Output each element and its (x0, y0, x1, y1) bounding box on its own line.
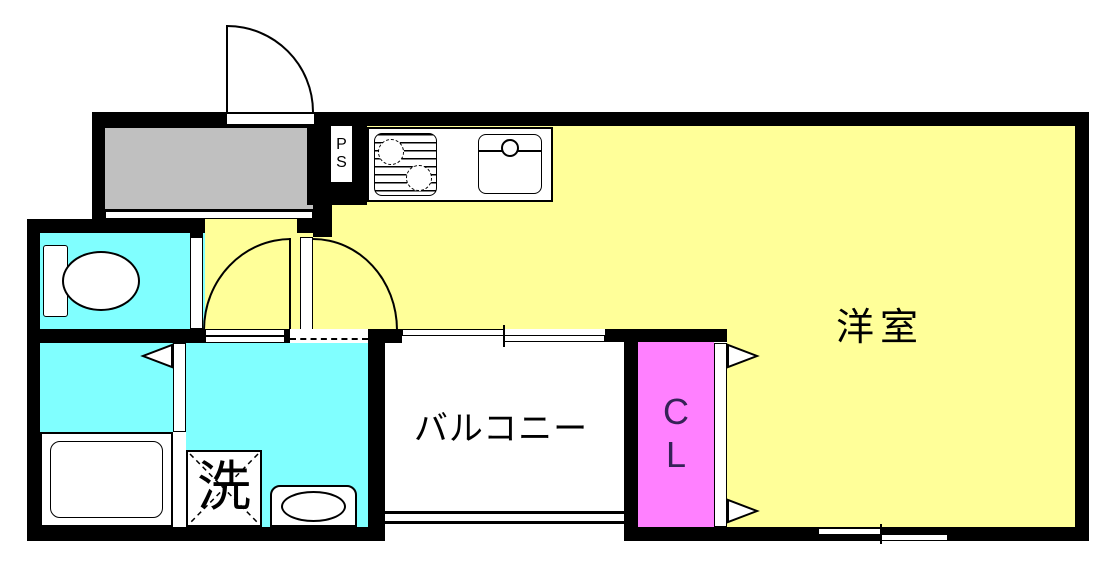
entry-door-opening (227, 112, 314, 126)
wall-balcony-right (624, 329, 638, 527)
balcony-sliding-window-icon (402, 329, 505, 336)
wall-hall-right-stub (313, 205, 332, 237)
western-room-label: 洋室 (780, 296, 980, 351)
bathtub-inner (50, 441, 163, 518)
wash-basin-bowl (281, 491, 346, 522)
pipe-space-label-s: S (336, 154, 347, 172)
washer-label: 洗 (188, 460, 260, 514)
pipe-space-label-p: P (336, 136, 347, 154)
balcony-railing-icon (385, 521, 624, 524)
entry-step (105, 211, 313, 219)
floor-plan: P S 洗 洋室 バルコニー C L (0, 0, 1117, 574)
western-room-floor (727, 329, 1075, 527)
wall-right (1075, 112, 1089, 541)
wall-window-left-fill (385, 329, 402, 343)
toilet-door (190, 237, 203, 329)
bedroom-sliding-window-icon (818, 528, 883, 535)
closet-label-c: C (638, 390, 714, 433)
balcony-railing-icon (385, 511, 624, 514)
bedroom-sliding-window-icon (881, 534, 948, 541)
sliding-door-icon (205, 329, 285, 336)
ldk-door-leaf (300, 237, 313, 330)
sliding-door-icon (205, 336, 285, 343)
window-center-tick (880, 524, 882, 544)
stove-burner-icon (378, 139, 404, 165)
faucet-icon (501, 139, 519, 157)
window-center-tick (503, 325, 505, 347)
entry-door-swing-icon (227, 25, 314, 112)
folding-door-triangle-icon (726, 498, 760, 525)
pipe-space: P S (330, 125, 353, 183)
balcony-label: バルコニー (390, 401, 612, 450)
stove-burner-icon (406, 165, 432, 191)
wall-toilet-door-stub (190, 219, 203, 237)
wall-entry-left (92, 112, 105, 219)
folding-door-triangle-icon (140, 343, 174, 370)
wall-bottom-left (27, 527, 385, 541)
wall-toilet-bottom (27, 329, 205, 343)
balcony-sliding-window-icon (504, 335, 605, 342)
wall-above-closet (605, 329, 727, 342)
wall-washroom-right (368, 329, 385, 541)
toilet-bowl-icon (62, 251, 140, 311)
wall-left (27, 219, 40, 541)
folding-door-triangle-icon (726, 343, 760, 370)
entry-genkan-floor (103, 126, 315, 211)
bathroom-folding-door (173, 343, 186, 432)
closet-label-l: L (638, 433, 714, 476)
wall-toilet-top (27, 219, 205, 233)
open-boundary-dashed-icon (290, 329, 368, 340)
washing-machine-icon: 洗 (186, 450, 262, 527)
closet-label: C L (638, 390, 714, 476)
